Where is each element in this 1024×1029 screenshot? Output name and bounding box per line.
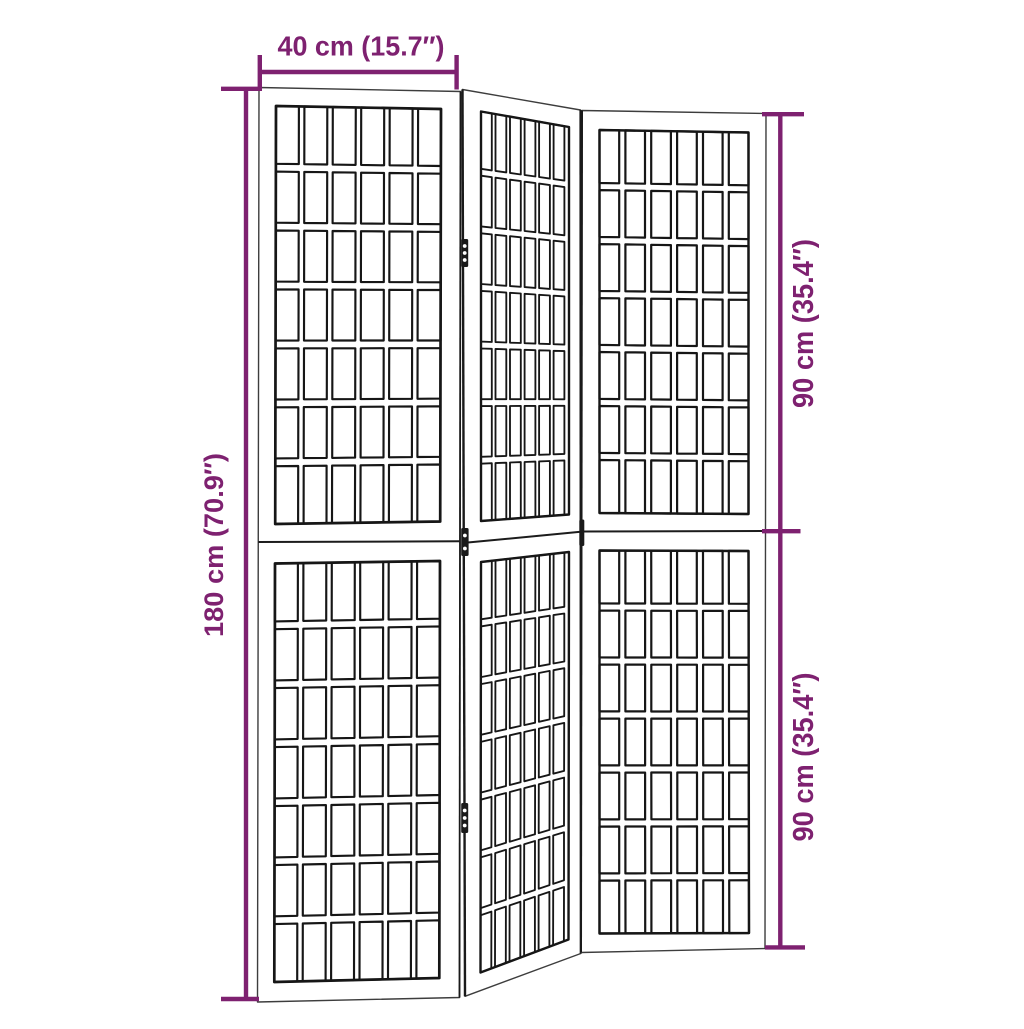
svg-text:40 cm (15.7″): 40 cm (15.7″) (278, 31, 445, 62)
svg-text:180 cm (70.9″): 180 cm (70.9″) (199, 453, 229, 637)
svg-text:90 cm (35.4″): 90 cm (35.4″) (788, 673, 820, 842)
svg-text:90 cm (35.4″): 90 cm (35.4″) (788, 239, 820, 408)
